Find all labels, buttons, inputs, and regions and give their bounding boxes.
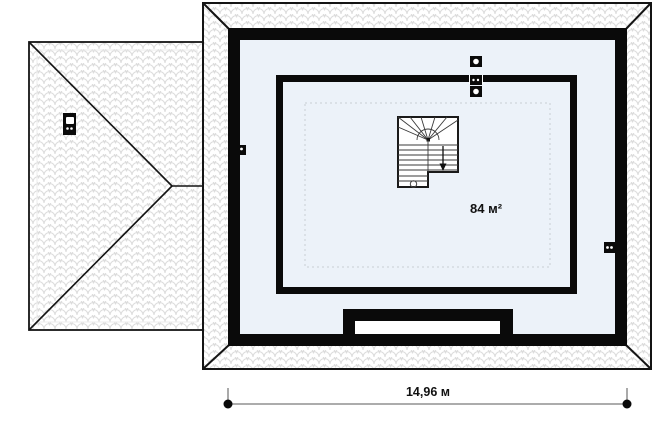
main-building (203, 3, 651, 369)
vent-stack-icon-right (604, 242, 616, 253)
floor-plan-drawing (0, 0, 655, 428)
dimension-label: 14,96 м (382, 385, 474, 399)
left-wing-roof (29, 42, 205, 330)
dimension-endpoint-right (623, 400, 632, 409)
chimney-icon (63, 113, 76, 135)
floor-plan-canvas: 84 м² 14,96 м (0, 0, 655, 428)
vent-stack-icon-left (237, 145, 246, 155)
dimension-endpoint-left (224, 400, 233, 409)
vent-stack-icon-top (470, 56, 482, 67)
vent-stack-icon-wall (469, 75, 483, 97)
area-label: 84 м² (470, 201, 502, 216)
dormer-recess (343, 309, 513, 346)
